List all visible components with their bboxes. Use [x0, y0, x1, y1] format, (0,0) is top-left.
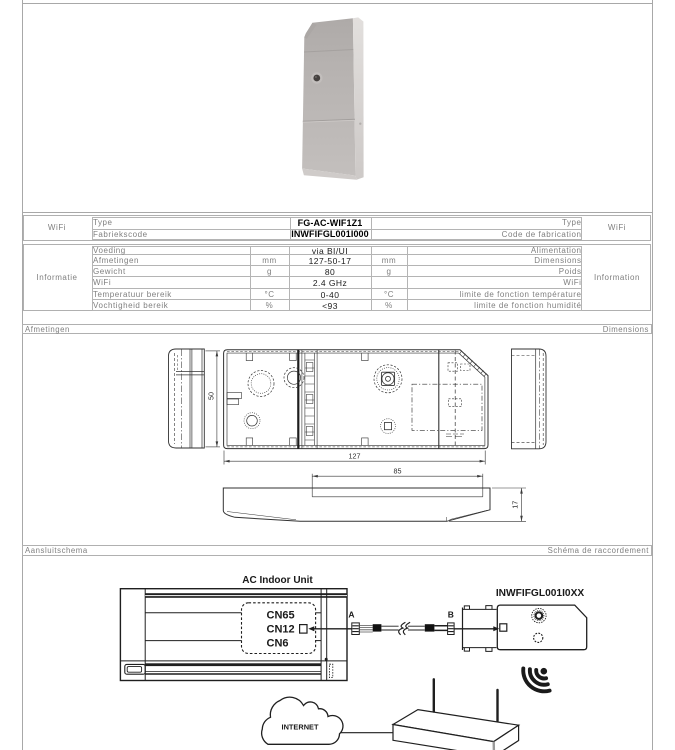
svg-text:INWFIFGL001I0XX: INWFIFGL001I0XX: [496, 588, 585, 599]
svg-text:CN65: CN65: [267, 609, 295, 621]
svg-text:127: 127: [349, 452, 361, 461]
svg-text:CN6: CN6: [267, 638, 289, 650]
svg-text:85: 85: [394, 467, 402, 476]
svg-text:B: B: [448, 610, 454, 620]
svg-text:AC Indoor Unit: AC Indoor Unit: [242, 575, 313, 586]
svg-text:INTERNET: INTERNET: [282, 722, 319, 731]
svg-text:A: A: [348, 610, 354, 620]
svg-text:17: 17: [511, 501, 520, 509]
svg-text:CN12: CN12: [267, 623, 295, 635]
svg-text:50: 50: [207, 392, 216, 400]
